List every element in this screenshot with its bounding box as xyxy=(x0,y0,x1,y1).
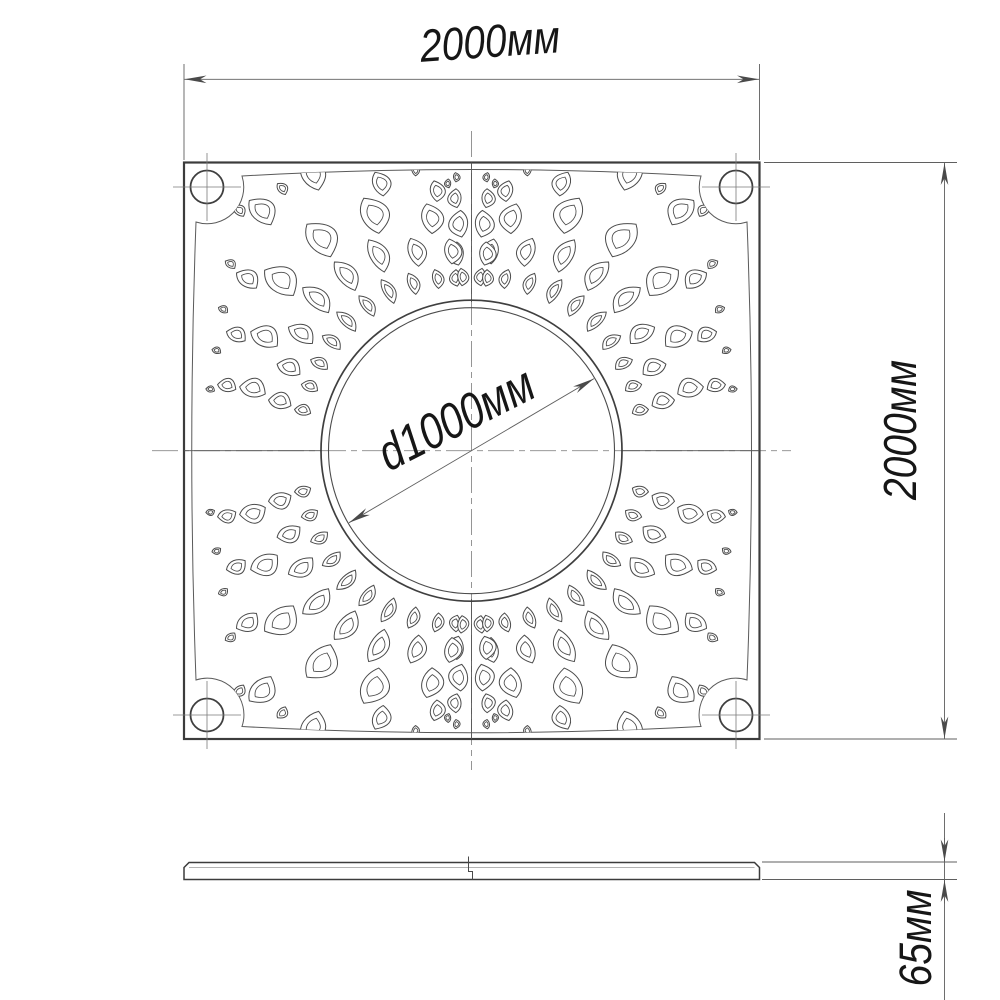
dim-height-label: 2000мм xyxy=(874,360,926,501)
dim-width-label: 2000мм xyxy=(417,10,561,72)
technical-drawing-page: 2000мм 2000мм d1000мм 65мм xyxy=(0,0,1000,1000)
dim-diameter-label: d1000мм xyxy=(368,356,543,482)
dimension-height: 2000мм xyxy=(764,163,957,740)
dimension-diameter: d1000мм xyxy=(349,356,594,523)
side-view xyxy=(184,857,760,880)
dimension-thickness: 65мм xyxy=(762,813,957,1000)
dim-thickness-label: 65мм xyxy=(890,890,941,987)
drawing-canvas: 2000мм 2000мм d1000мм 65мм xyxy=(0,0,1000,1000)
